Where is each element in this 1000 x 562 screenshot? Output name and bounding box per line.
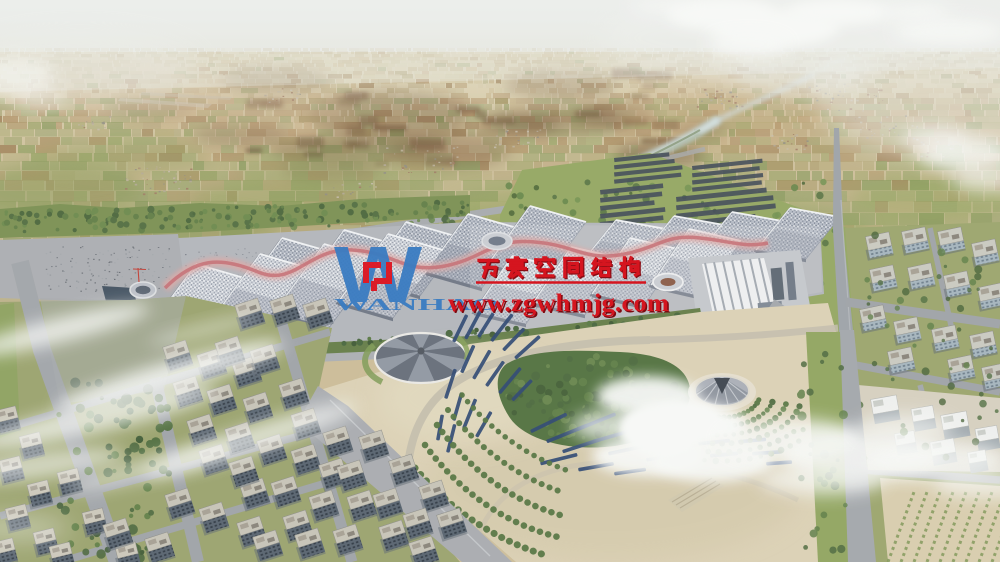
svg-text:www.zgwhmjg.com: www.zgwhmjg.com — [448, 290, 669, 317]
